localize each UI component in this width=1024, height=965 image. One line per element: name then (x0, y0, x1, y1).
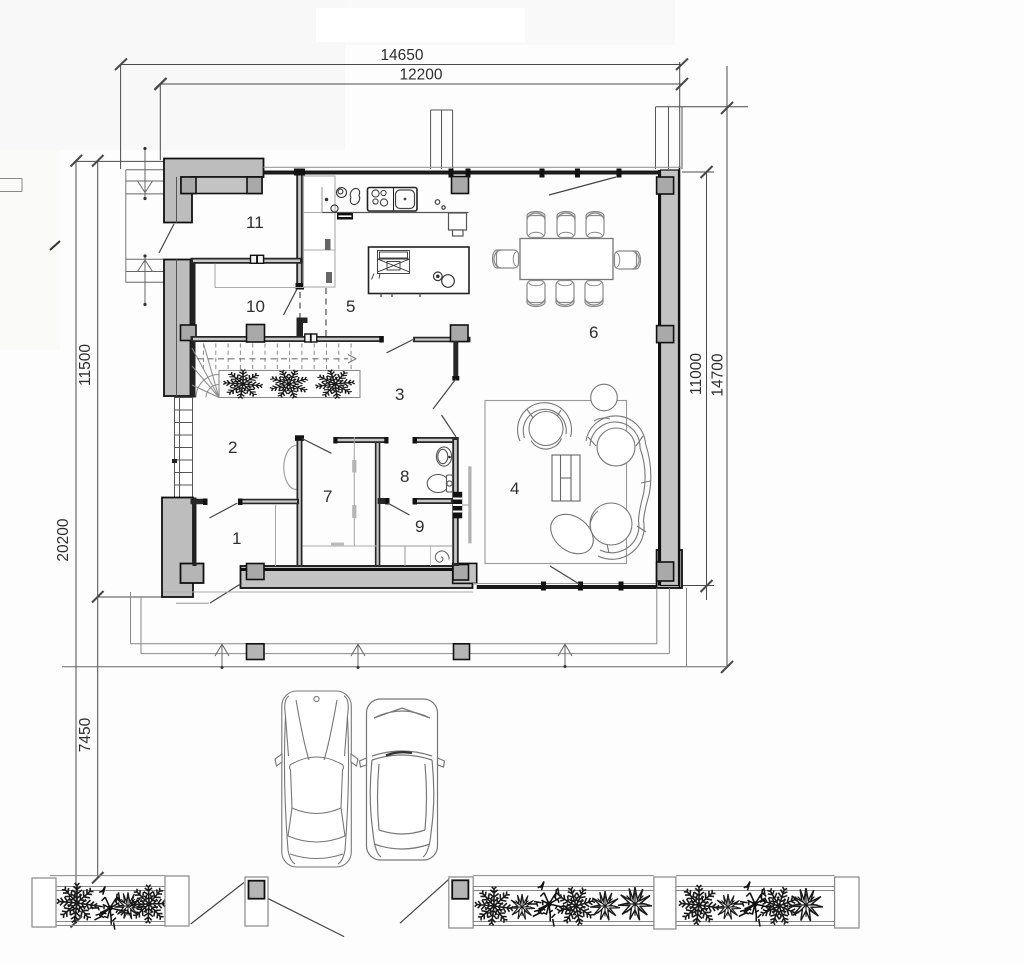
svg-text:1: 1 (232, 529, 241, 548)
svg-text:8: 8 (400, 467, 409, 486)
svg-text:9: 9 (415, 517, 424, 536)
svg-text:14700: 14700 (710, 353, 727, 396)
svg-text:2: 2 (228, 438, 237, 457)
svg-text:20200: 20200 (55, 518, 72, 561)
svg-text:5: 5 (346, 297, 355, 316)
svg-text:11: 11 (246, 213, 264, 232)
svg-text:12200: 12200 (399, 67, 442, 84)
svg-text:7: 7 (323, 487, 332, 506)
svg-text:3: 3 (395, 385, 404, 404)
svg-text:14650: 14650 (380, 47, 423, 64)
svg-text:6: 6 (589, 323, 598, 342)
svg-text:10: 10 (246, 297, 265, 316)
svg-text:7450: 7450 (77, 717, 94, 752)
svg-text:4: 4 (510, 479, 519, 498)
svg-text:11500: 11500 (77, 344, 94, 386)
svg-text:11000: 11000 (688, 353, 705, 395)
